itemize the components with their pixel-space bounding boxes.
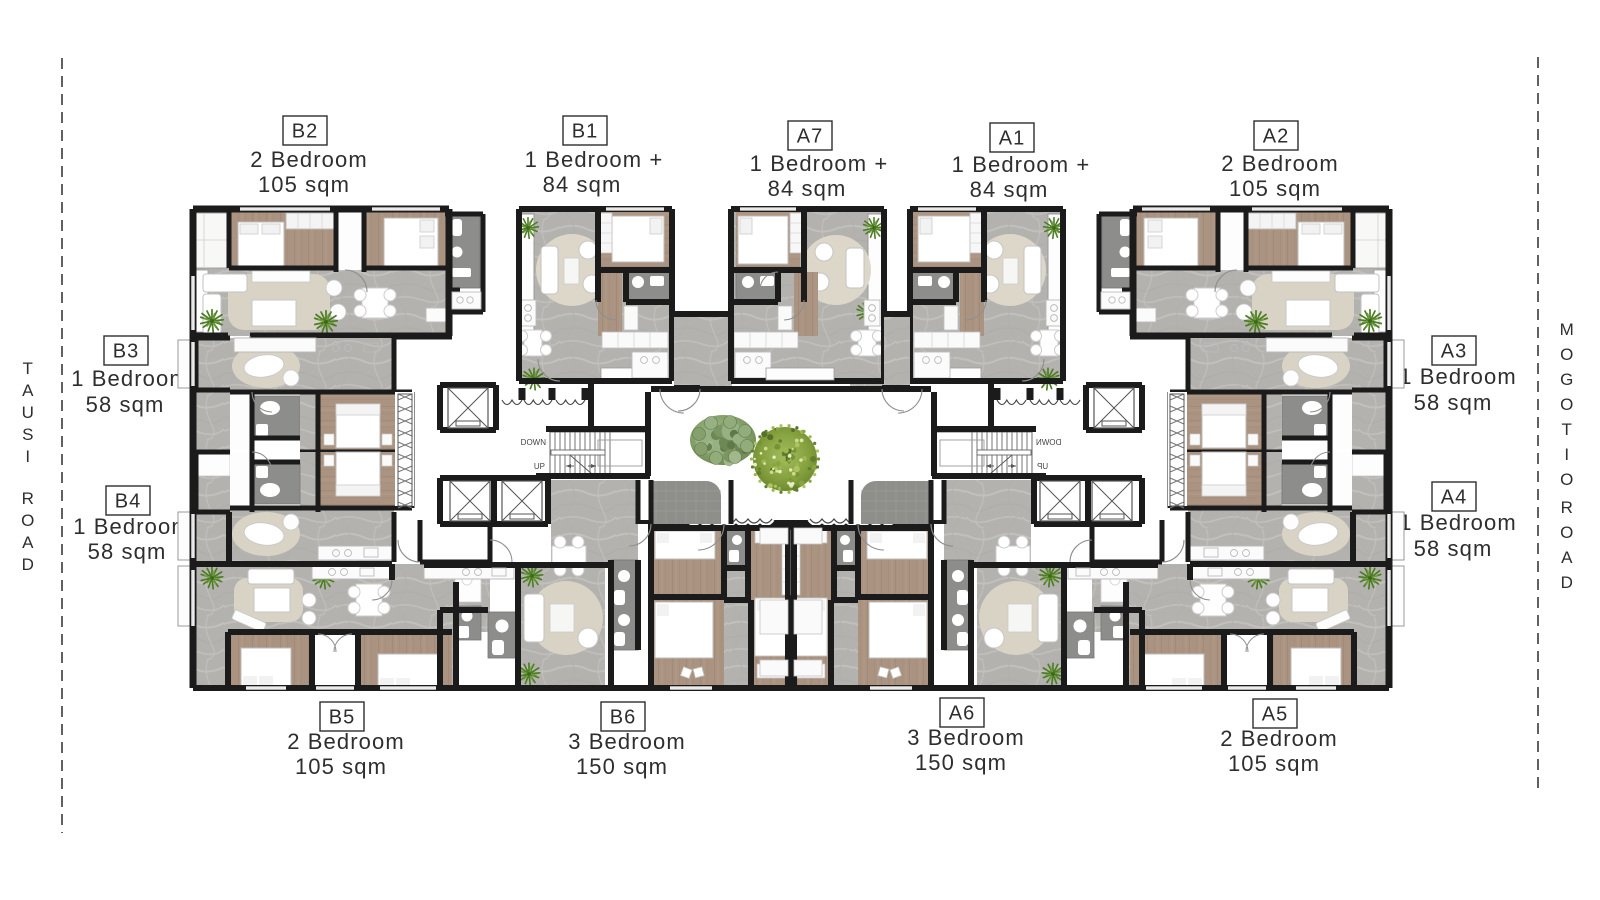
svg-text:150 sqm: 150 sqm	[915, 750, 1007, 775]
svg-text:D: D	[1561, 573, 1574, 592]
svg-text:2 Bedroom: 2 Bedroom	[1221, 151, 1339, 176]
svg-text:B6: B6	[610, 707, 636, 729]
svg-text:58 sqm: 58 sqm	[1414, 536, 1493, 561]
svg-text:R: R	[1561, 498, 1574, 517]
svg-text:UP: UP	[534, 462, 545, 471]
svg-text:B1: B1	[572, 121, 598, 143]
svg-text:T: T	[1562, 420, 1573, 439]
svg-text:A: A	[22, 381, 34, 400]
svg-text:105 sqm: 105 sqm	[1229, 176, 1321, 201]
svg-text:105 sqm: 105 sqm	[258, 172, 350, 197]
svg-text:O: O	[1560, 395, 1574, 414]
svg-text:A3: A3	[1441, 341, 1467, 363]
svg-text:1 Bedroom: 1 Bedroom	[1399, 364, 1517, 389]
svg-text:B5: B5	[329, 707, 355, 729]
svg-text:150 sqm: 150 sqm	[576, 754, 668, 779]
svg-text:A6: A6	[949, 703, 975, 725]
svg-text:G: G	[1560, 370, 1574, 389]
svg-text:84 sqm: 84 sqm	[970, 177, 1049, 202]
svg-text:A4: A4	[1441, 487, 1467, 509]
svg-text:1 Bedroom +: 1 Bedroom +	[750, 151, 889, 176]
svg-text:A: A	[1561, 548, 1573, 567]
svg-text:B4: B4	[115, 491, 141, 513]
svg-text:2 Bedroom: 2 Bedroom	[287, 729, 405, 754]
svg-text:I: I	[1564, 445, 1569, 464]
svg-text:1 Bedroom +: 1 Bedroom +	[525, 147, 664, 172]
svg-text:84 sqm: 84 sqm	[543, 172, 622, 197]
svg-text:DOWN: DOWN	[521, 438, 547, 447]
svg-text:1 Bedroom: 1 Bedroom	[73, 514, 191, 539]
svg-text:3 Bedroom: 3 Bedroom	[907, 725, 1025, 750]
svg-text:A2: A2	[1263, 126, 1289, 148]
svg-text:D: D	[22, 555, 35, 574]
svg-text:M: M	[1560, 320, 1575, 339]
svg-text:58 sqm: 58 sqm	[1414, 390, 1493, 415]
svg-text:A7: A7	[797, 126, 823, 148]
svg-text:O: O	[1560, 470, 1574, 489]
svg-text:1 Bedroom: 1 Bedroom	[1399, 510, 1517, 535]
svg-text:2 Bedroom: 2 Bedroom	[1220, 726, 1338, 751]
svg-text:U: U	[22, 403, 35, 422]
svg-text:A5: A5	[1262, 704, 1288, 726]
svg-text:2 Bedroom: 2 Bedroom	[250, 147, 368, 172]
svg-text:1 Bedroom: 1 Bedroom	[71, 366, 189, 391]
svg-text:A1: A1	[999, 128, 1025, 150]
svg-text:105 sqm: 105 sqm	[295, 754, 387, 779]
svg-text:A: A	[22, 533, 34, 552]
svg-text:58 sqm: 58 sqm	[88, 539, 167, 564]
svg-text:O: O	[1560, 345, 1574, 364]
svg-text:1 Bedroom +: 1 Bedroom +	[952, 152, 1091, 177]
svg-text:R: R	[22, 489, 35, 508]
svg-text:B3: B3	[113, 341, 139, 363]
svg-text:3 Bedroom: 3 Bedroom	[568, 729, 686, 754]
svg-text:S: S	[22, 425, 34, 444]
svg-text:58 sqm: 58 sqm	[86, 392, 165, 417]
svg-text:I: I	[25, 447, 30, 466]
svg-text:B2: B2	[292, 121, 318, 143]
svg-text:105 sqm: 105 sqm	[1228, 751, 1320, 776]
svg-text:T: T	[23, 359, 34, 378]
svg-text:84 sqm: 84 sqm	[768, 176, 847, 201]
svg-text:O: O	[21, 511, 35, 530]
svg-text:O: O	[1560, 523, 1574, 542]
